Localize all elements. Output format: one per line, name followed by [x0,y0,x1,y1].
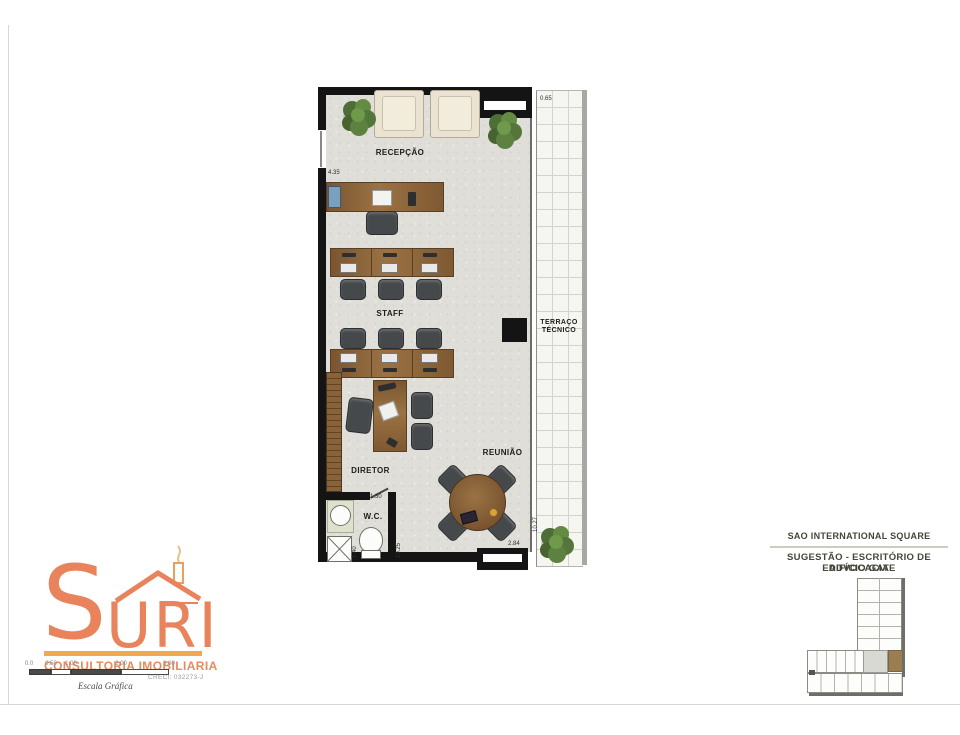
building-name: EDIFÍCIO GATE [758,563,960,574]
title-divider [770,546,948,548]
page: RECEPÇÃO STAFF [0,0,960,735]
keyplan-wing-bottom-row [807,673,903,693]
project-title: SAO INTERNATIONAL SQUARE [768,531,950,541]
title-block: SAO INTERNATIONAL SQUARE SUGESTÃO - ESCR… [0,0,960,735]
keyplan-entry-mark [809,670,815,675]
keyplan-lobby-cell [863,650,888,673]
keyplan-bottom-edge [809,693,903,696]
keyplan-tower-divider [879,578,880,652]
keyplan-wing-top-row [807,650,864,673]
keyplan-unit-highlight [888,650,903,672]
keyplan-right-edge [902,578,905,677]
